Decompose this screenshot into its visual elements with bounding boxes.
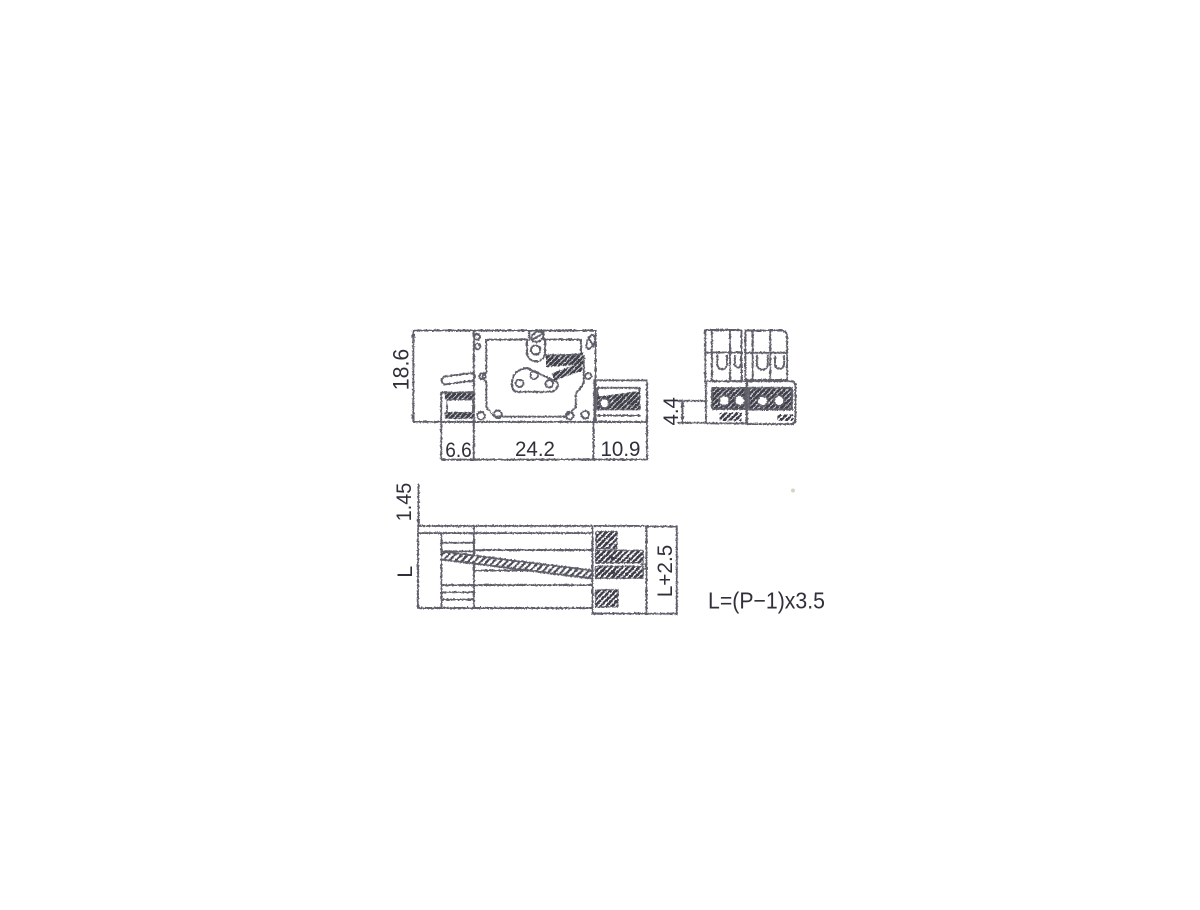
svg-text:L=(P−1)x3.5: L=(P−1)x3.5: [708, 588, 825, 614]
svg-text:18.6: 18.6: [388, 349, 413, 391]
svg-text:L: L: [393, 566, 417, 578]
svg-text:24.2: 24.2: [515, 437, 555, 461]
svg-text:1.45: 1.45: [392, 483, 416, 522]
svg-text:4.4: 4.4: [659, 397, 683, 426]
svg-text:L+2.5: L+2.5: [653, 545, 677, 598]
svg-text:6.6: 6.6: [445, 438, 472, 462]
svg-text:10.9: 10.9: [601, 437, 641, 461]
